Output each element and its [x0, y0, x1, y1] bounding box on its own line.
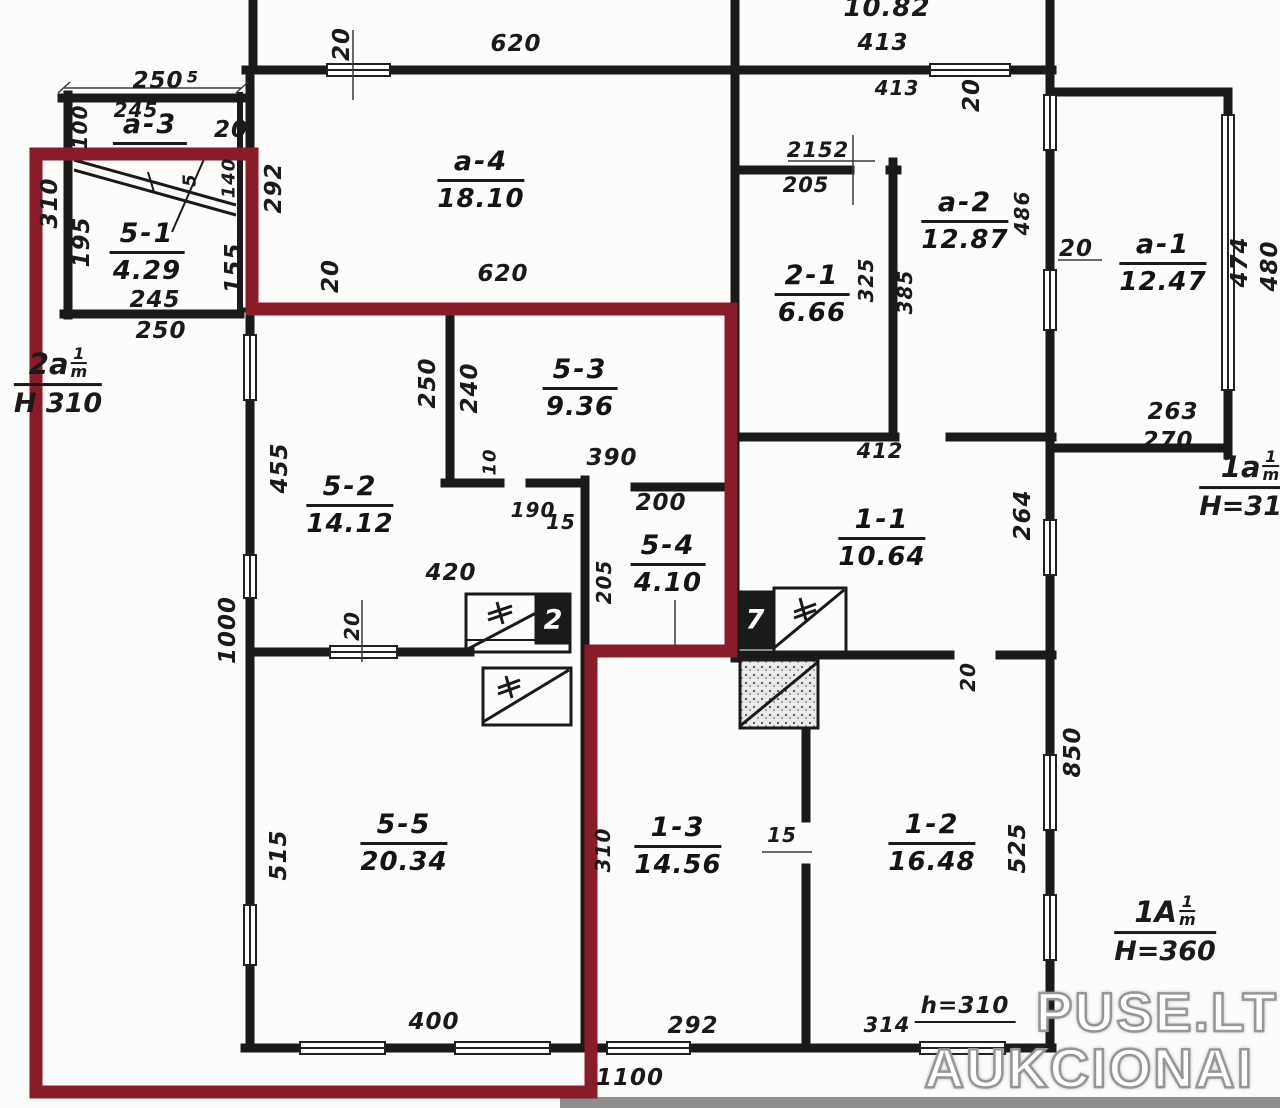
dimension-label: 325: [854, 258, 878, 303]
dimension-label: 480: [1257, 240, 1280, 291]
notation-index: 1a1m: [1199, 452, 1280, 489]
dimension-label: 15: [546, 510, 576, 534]
dimension-label: 515: [266, 829, 292, 880]
dimension-label: 270: [1142, 428, 1193, 454]
dimension-label: 264: [1010, 489, 1036, 540]
room-area: 12.47: [1119, 265, 1206, 297]
dimension-label: 412: [857, 439, 904, 463]
floor-plan-labels: a-35-14.29a-418.102-16.66a-212.87a-112.4…: [0, 0, 1280, 1108]
dimension-label: 420: [425, 560, 476, 586]
room-id: 5-4: [631, 530, 706, 566]
dimension-label: 310: [591, 828, 615, 873]
dimension-label: 292: [667, 1013, 718, 1039]
dimension-label: 413: [875, 76, 920, 100]
dimension-label: 240: [457, 362, 483, 413]
room-area: 10.64: [838, 540, 925, 572]
dimension-label: 474: [1227, 236, 1253, 287]
room-label: 5-214.12: [306, 471, 393, 539]
room-label: 1-314.56: [634, 812, 721, 880]
room-label: 1-216.48: [888, 809, 975, 877]
room-id: 2-1: [775, 260, 850, 296]
room-id: 5-2: [306, 471, 393, 507]
dimension-label: h=310: [915, 993, 1016, 1023]
notation-height: H 310: [14, 386, 102, 419]
room-id: a-1: [1119, 229, 1206, 265]
dimension-label: 20: [340, 611, 364, 641]
room-id: 5-5: [360, 809, 447, 845]
room-id: 1-2: [888, 809, 975, 845]
notation-height: H=310: [1199, 489, 1280, 522]
stove-number: 7: [746, 605, 765, 636]
room-id: 1-1: [838, 504, 925, 540]
dimension-label: 314: [864, 1013, 911, 1037]
dimension-label: 155: [221, 242, 247, 293]
room-id: a-2: [921, 187, 1008, 223]
room-label: 5-14.29: [110, 218, 185, 286]
dimension-label: 20: [959, 78, 985, 112]
dimension-label: 15: [767, 823, 797, 847]
dimension-label: 2152: [787, 138, 849, 162]
dimension-label: 200: [635, 490, 686, 516]
room-area: 9.36: [543, 390, 618, 422]
dimension-label: 20: [1059, 236, 1093, 262]
dimension-label: 205: [592, 560, 616, 605]
notation-index: 1A1m: [1114, 897, 1216, 934]
dimension-label: 10.82: [843, 0, 930, 23]
building-notation: 2a1mH 310: [14, 349, 102, 419]
room-area: 4.10: [631, 566, 706, 598]
dimension-label: 20: [318, 259, 344, 293]
stove-number: 2: [544, 605, 563, 636]
room-label: a-212.87: [921, 187, 1008, 255]
dimension-label: 400: [408, 1009, 459, 1035]
watermark-line2: AUKCIONAI: [924, 1036, 1254, 1100]
dimension-label: 390: [586, 445, 637, 471]
room-id: 5-3: [543, 354, 618, 390]
dimension-label: 195: [69, 216, 95, 267]
room-label: 2-16.66: [775, 260, 850, 328]
room-label: a-112.47: [1119, 229, 1206, 297]
dimension-label: 245: [129, 287, 180, 313]
notation-height: H=360: [1114, 934, 1216, 967]
dimension-label: 5: [180, 173, 201, 187]
dimension-label: 413: [857, 30, 908, 56]
dimension-label: 20: [956, 662, 980, 692]
room-id: 5-1: [110, 218, 185, 254]
room-id: a-4: [437, 146, 524, 182]
dimension-label: 205: [783, 173, 830, 197]
room-area: 14.56: [634, 848, 721, 880]
room-area: 20.34: [360, 845, 447, 877]
dimension-label: 385: [893, 270, 917, 315]
dimension-label: 20: [214, 117, 248, 143]
dimension-label: 20: [329, 27, 355, 61]
dimension-label: 486: [1010, 191, 1034, 236]
dimension-label: 250: [132, 68, 183, 94]
dimension-label: 850: [1060, 726, 1086, 777]
notation-index: 2a1m: [14, 349, 102, 386]
dimension-label: 10: [480, 448, 501, 475]
room-area: 12.87: [921, 223, 1008, 255]
dimension-label: 263: [1147, 399, 1198, 425]
dimension-label: 250: [135, 318, 186, 344]
dimension-label: 620: [477, 261, 528, 287]
room-area: 4.29: [110, 254, 185, 286]
room-area: 16.48: [888, 845, 975, 877]
dimension-label: 1100: [596, 1065, 664, 1091]
room-area: 14.12: [306, 507, 393, 539]
dimension-label: 620: [490, 31, 541, 57]
dimension-label: 292: [261, 162, 287, 213]
dimension-label: 1000: [215, 596, 241, 664]
watermark-line1: PUSE.LT: [1036, 980, 1278, 1044]
dimension-label: 250: [415, 357, 441, 408]
dimension-label: 5: [187, 68, 199, 87]
floorplan-scan: a-35-14.29a-418.102-16.66a-212.87a-112.4…: [0, 0, 1280, 1108]
room-area: 6.66: [775, 296, 850, 328]
room-label: 5-39.36: [543, 354, 618, 422]
room-area: 18.10: [437, 182, 524, 214]
dimension-label: 140: [219, 158, 240, 199]
dimension-label: 525: [1005, 822, 1031, 873]
building-notation: 1A1mH=360: [1114, 897, 1216, 967]
dimension-label: 455: [267, 442, 293, 493]
building-notation: 1a1mH=310: [1199, 452, 1280, 522]
room-label: a-418.10: [437, 146, 524, 214]
dimension-label: 100: [68, 105, 92, 150]
dimension-label: 245: [114, 98, 159, 122]
room-label: 1-110.64: [838, 504, 925, 572]
dimension-label: 310: [37, 177, 63, 228]
room-id: 1-3: [634, 812, 721, 848]
room-label: 5-520.34: [360, 809, 447, 877]
room-label: 5-44.10: [631, 530, 706, 598]
